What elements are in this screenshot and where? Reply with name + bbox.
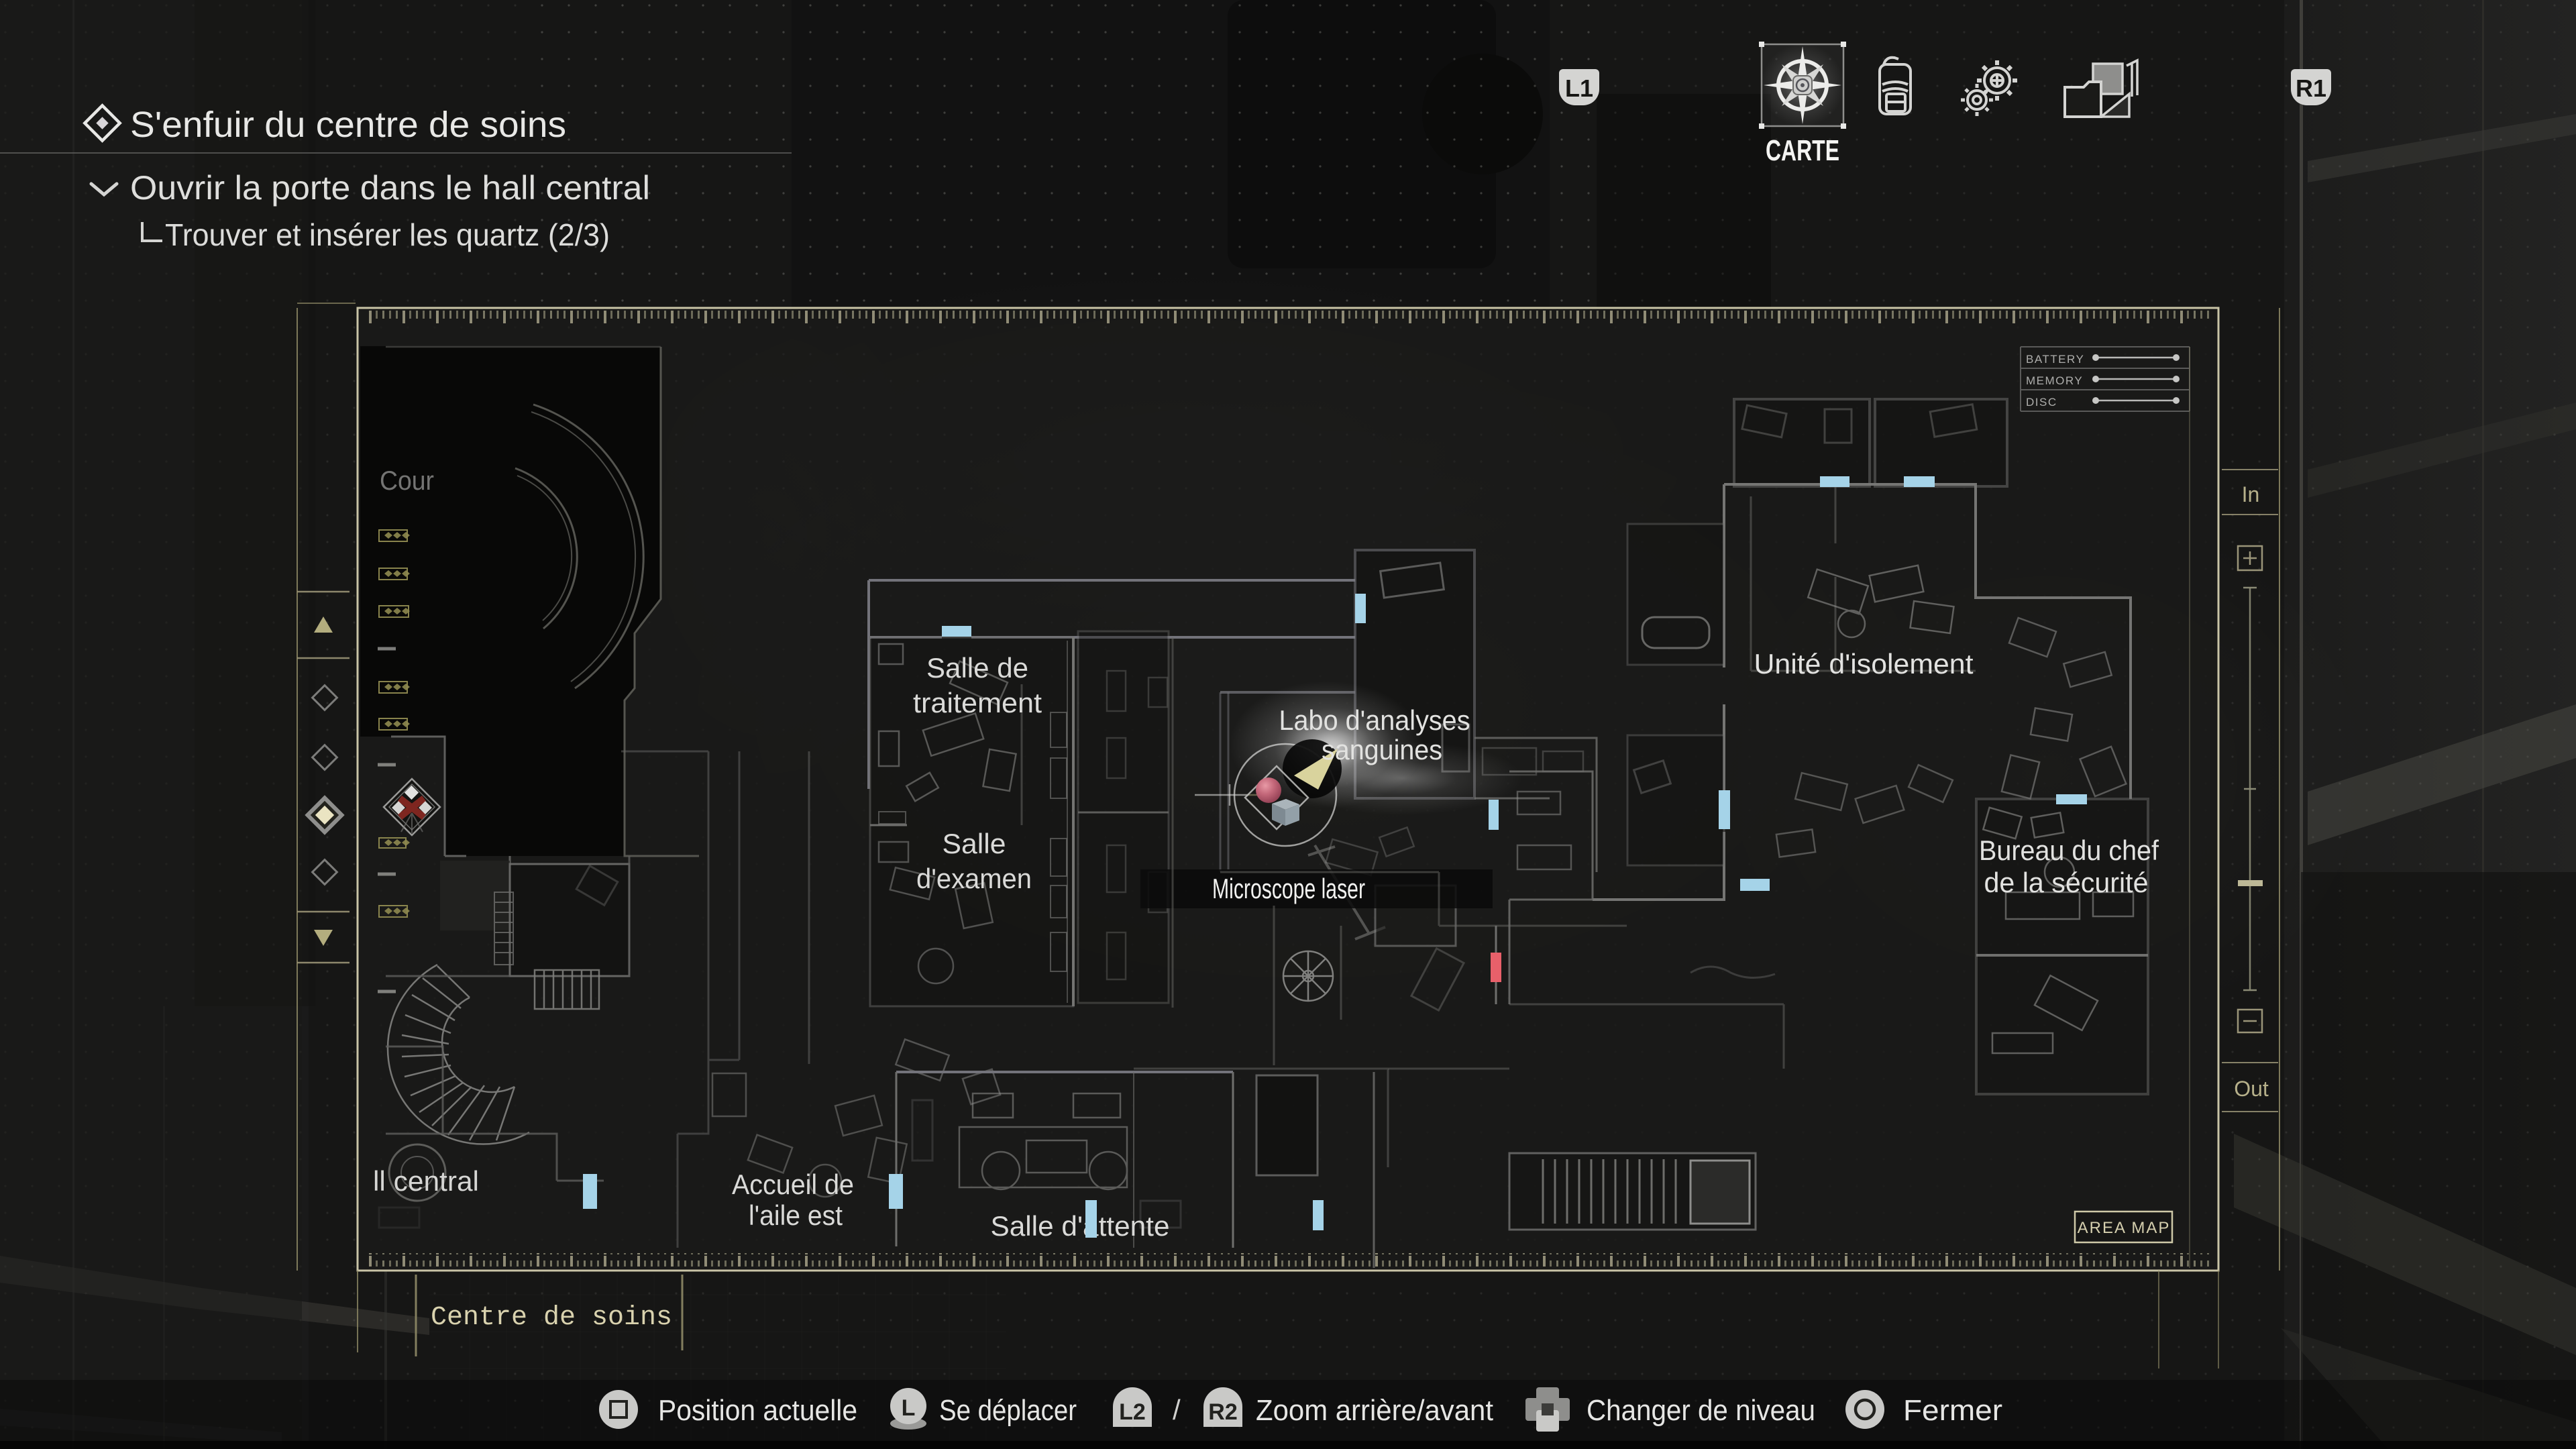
svg-text:/: / [1173,1394,1181,1426]
svg-text:traitement: traitement [913,687,1042,718]
svg-text:Se déplacer: Se déplacer [939,1394,1077,1427]
svg-text:l'aile est: l'aile est [749,1199,843,1231]
svg-text:de la sécurité: de la sécurité [1984,867,2149,898]
svg-text:Changer de niveau: Changer de niveau [1587,1394,1815,1427]
svg-text:BATTERY: BATTERY [2026,353,2084,366]
svg-text:R2: R2 [1208,1399,1237,1425]
svg-text:d'examen: d'examen [916,863,1032,894]
svg-text:Bureau du chef: Bureau du chef [1979,835,2159,866]
svg-text:Salle: Salle [943,828,1006,859]
svg-text:Position actuelle: Position actuelle [658,1394,857,1427]
svg-text:S'enfuir du centre de soins: S'enfuir du centre de soins [130,105,566,145]
svg-text:Centre de soins: Centre de soins [431,1303,672,1333]
svg-text:Ouvrir la porte dans le hall c: Ouvrir la porte dans le hall central [130,169,650,207]
svg-text:In: In [2242,482,2260,506]
svg-text:MEMORY: MEMORY [2026,374,2083,387]
svg-text:L2: L2 [1119,1399,1146,1425]
svg-text:CARTE: CARTE [1766,134,1839,167]
svg-text:Zoom arrière/avant: Zoom arrière/avant [1256,1394,1493,1427]
svg-text:Labo d'analyses: Labo d'analyses [1279,704,1470,736]
svg-text:Unité d'isolement: Unité d'isolement [1754,648,1974,680]
svg-text:Out: Out [2234,1077,2269,1101]
svg-text:L1: L1 [1565,74,1593,102]
svg-text:DISC: DISC [2026,396,2057,409]
svg-text:AREA MAP: AREA MAP [2078,1219,2171,1237]
svg-text:Accueil de: Accueil de [732,1169,854,1200]
svg-text:Cour: Cour [380,466,434,496]
svg-text:Fermer: Fermer [1903,1394,2002,1427]
svg-text:Salle de: Salle de [926,652,1028,684]
svg-text:ll central: ll central [373,1165,479,1197]
svg-text:R1: R1 [2296,74,2326,102]
svg-text:Salle d'attente: Salle d'attente [991,1210,1170,1242]
svg-text:Microscope laser: Microscope laser [1212,873,1365,904]
svg-text:L: L [902,1395,916,1421]
svg-text:Trouver et insérer les quartz: Trouver et insérer les quartz (2/3) [165,217,610,252]
svg-text:sanguines: sanguines [1322,734,1442,765]
